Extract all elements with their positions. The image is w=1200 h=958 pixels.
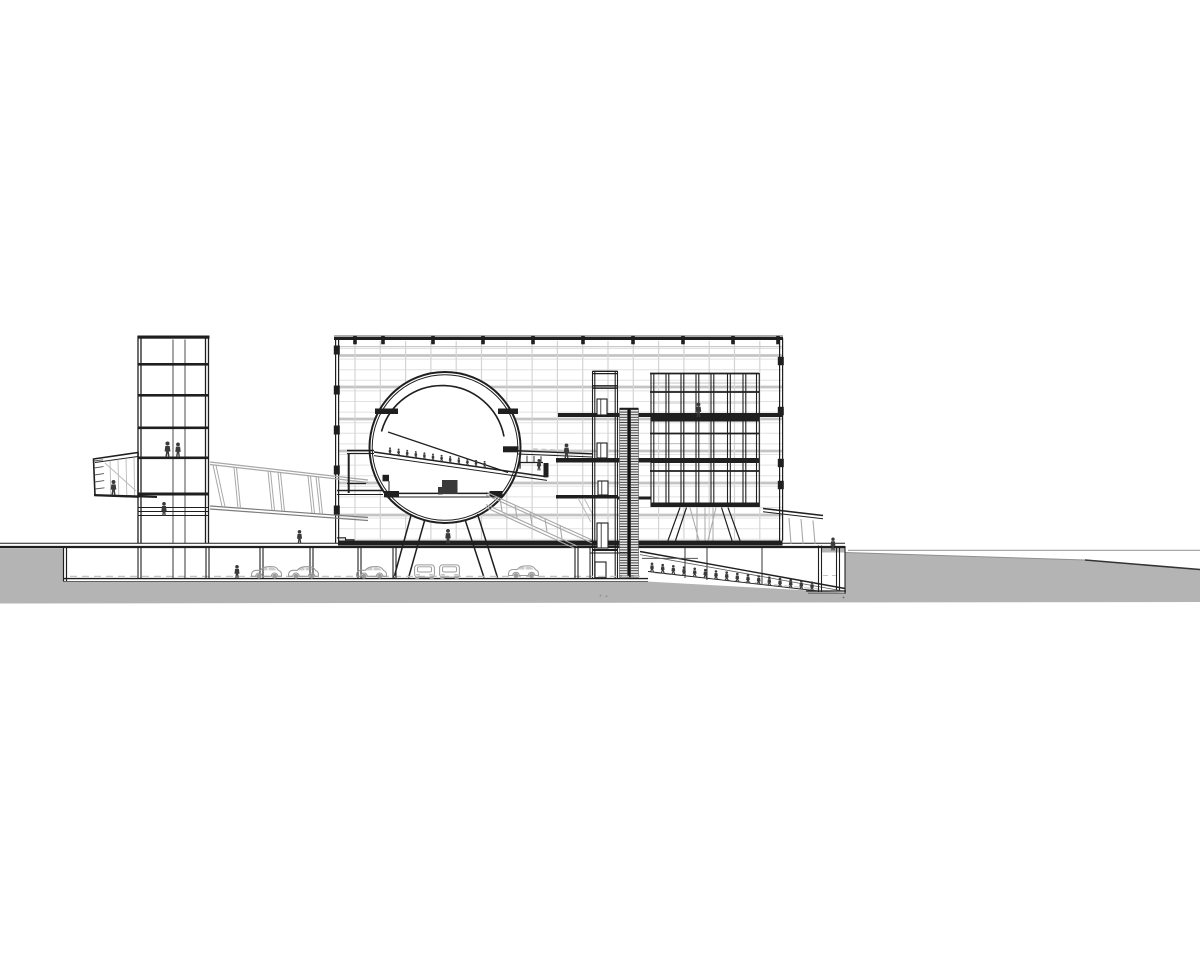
entry-truss-bridge	[210, 462, 368, 521]
dome-floor-stub-right	[498, 409, 518, 415]
architectural-section-drawing	[0, 0, 1200, 958]
roof-slab	[334, 337, 783, 340]
section-drawing-canvas	[0, 0, 1200, 958]
cantilevered-box-bridge	[94, 453, 158, 498]
parking-door	[595, 562, 606, 578]
dome-floor-stub-left	[375, 409, 398, 415]
floor-notch	[383, 475, 390, 482]
exhibit-grid-structure	[650, 373, 759, 507]
sphere-exit-stub	[503, 446, 519, 452]
exhibit-structure-legs	[668, 508, 740, 541]
left-stair-tower	[138, 336, 210, 544]
exhibit-kiosk	[442, 480, 458, 494]
ramp-end-post	[544, 463, 549, 477]
escalator-core	[620, 409, 639, 578]
